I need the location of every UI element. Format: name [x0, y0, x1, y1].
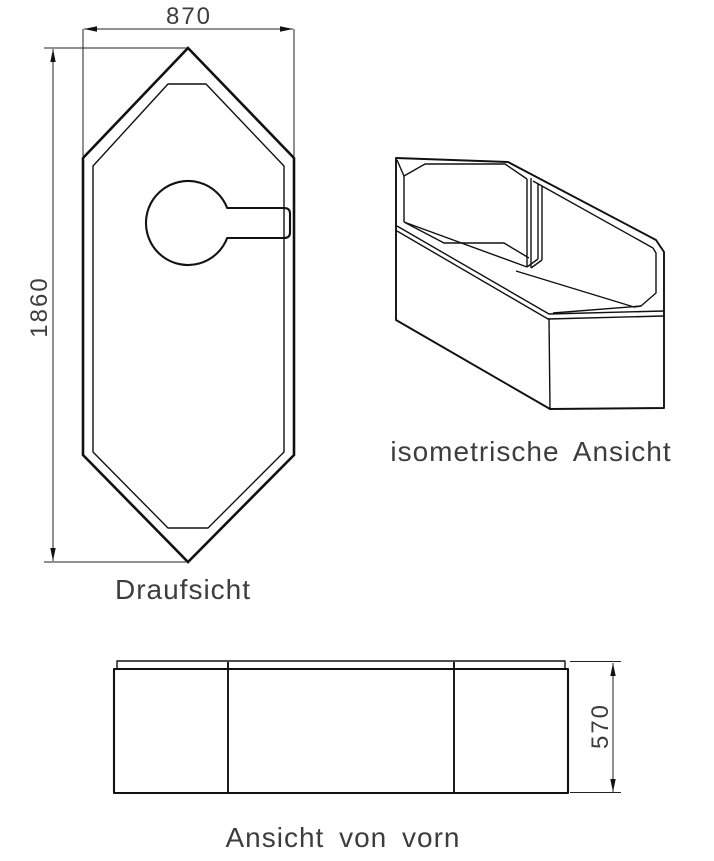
iso-right-basin-floor [516, 271, 641, 307]
iso-view-label: isometrische Ansicht [390, 436, 671, 467]
front-view-label: Ansicht von vorn [226, 822, 461, 853]
top-view-inner-outline [93, 84, 284, 528]
drawing-canvas: 870 1860 Draufsicht [0, 0, 714, 861]
iso-left-basin-floor [404, 222, 529, 258]
front-view-rim-strip [117, 661, 565, 669]
dim-length-arrow-top [50, 49, 55, 62]
top-view-label: Draufsicht [115, 574, 251, 605]
dim-width-arrow-left [84, 26, 97, 31]
dim-length-arrow-bottom [50, 548, 55, 561]
iso-view [396, 158, 664, 409]
iso-partition-foot-1 [527, 259, 538, 267]
front-view-body [114, 669, 568, 793]
iso-right-basin-right-edge [553, 248, 656, 313]
dimension-width: 870 [83, 3, 294, 156]
iso-partition-foot-2 [531, 260, 542, 268]
dim-width-value: 870 [166, 3, 212, 30]
iso-left-basin-near-edge [404, 222, 527, 267]
dimension-height: 570 [570, 662, 621, 793]
top-view [83, 48, 294, 562]
dim-height-arrow-bottom [610, 779, 615, 792]
dim-height-arrow-top [610, 663, 615, 676]
dim-length-value: 1860 [26, 276, 53, 337]
iso-right-basin-far-edge [533, 181, 653, 248]
dimension-length: 1860 [26, 48, 187, 562]
dim-height-value: 570 [587, 703, 614, 749]
iso-apron-edge [549, 318, 550, 408]
technical-drawing: 870 1860 Draufsicht [0, 0, 714, 861]
iso-silhouette [396, 158, 664, 409]
dim-width-arrow-right [280, 26, 293, 31]
front-view [114, 661, 568, 793]
seat-cutout [146, 181, 290, 265]
top-view-outer-outline [83, 48, 294, 562]
